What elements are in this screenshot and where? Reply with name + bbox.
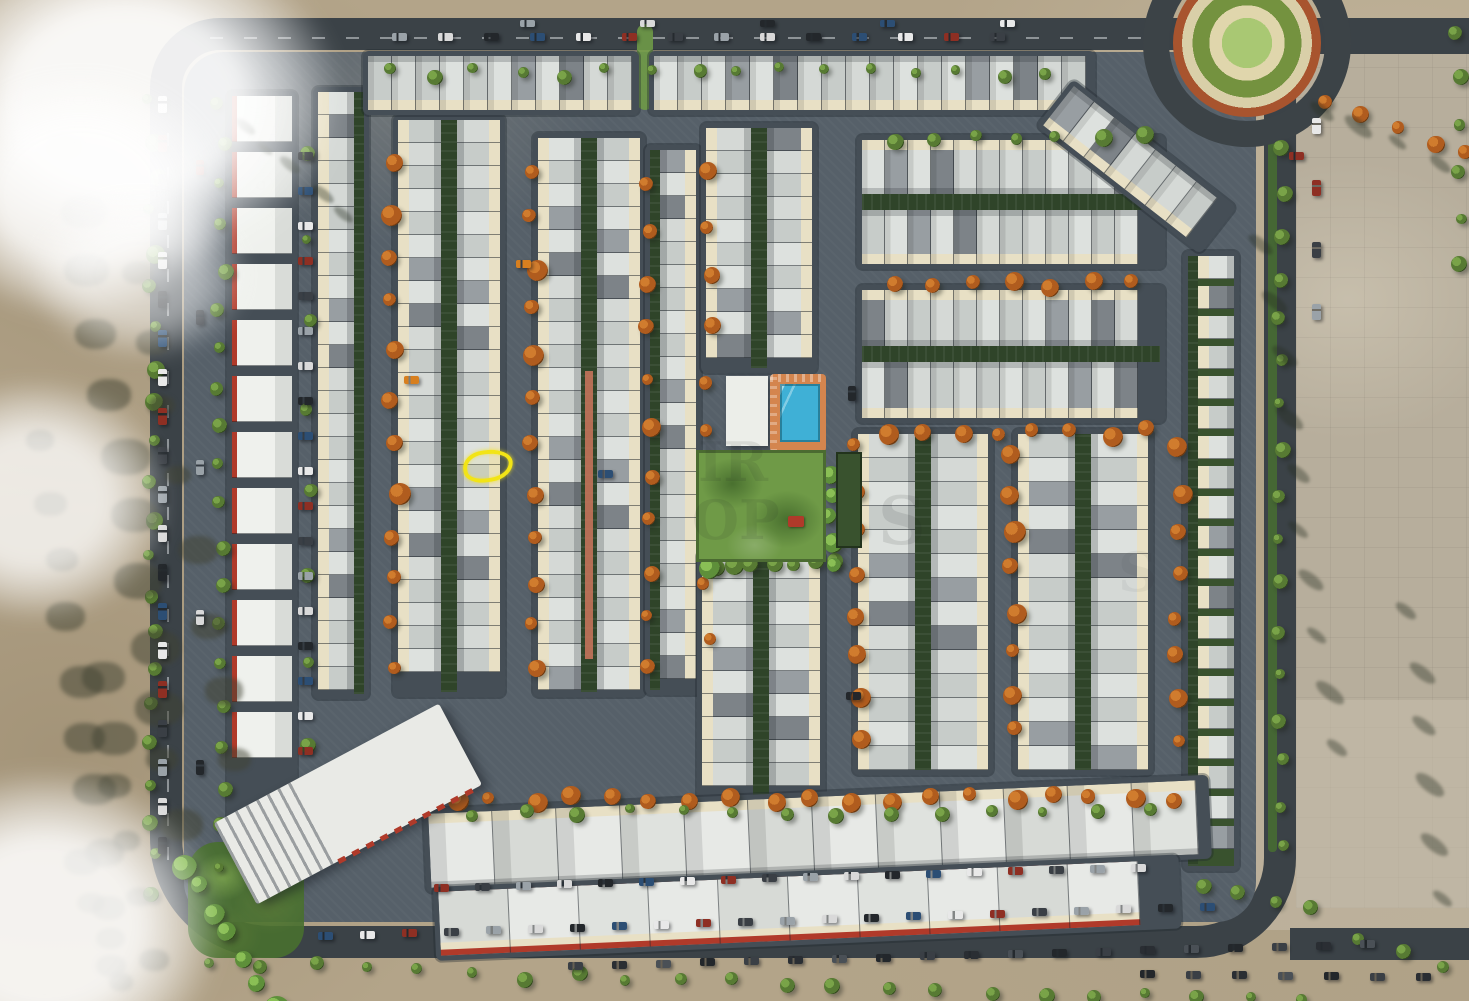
cloud [0,380,170,620]
cloud-layer [0,0,1469,1001]
cloud [0,70,230,320]
cloud [30,190,250,360]
cloud [0,770,220,1001]
aerial-site-plan: IROPSS [0,0,1469,1001]
cloud [0,0,340,270]
